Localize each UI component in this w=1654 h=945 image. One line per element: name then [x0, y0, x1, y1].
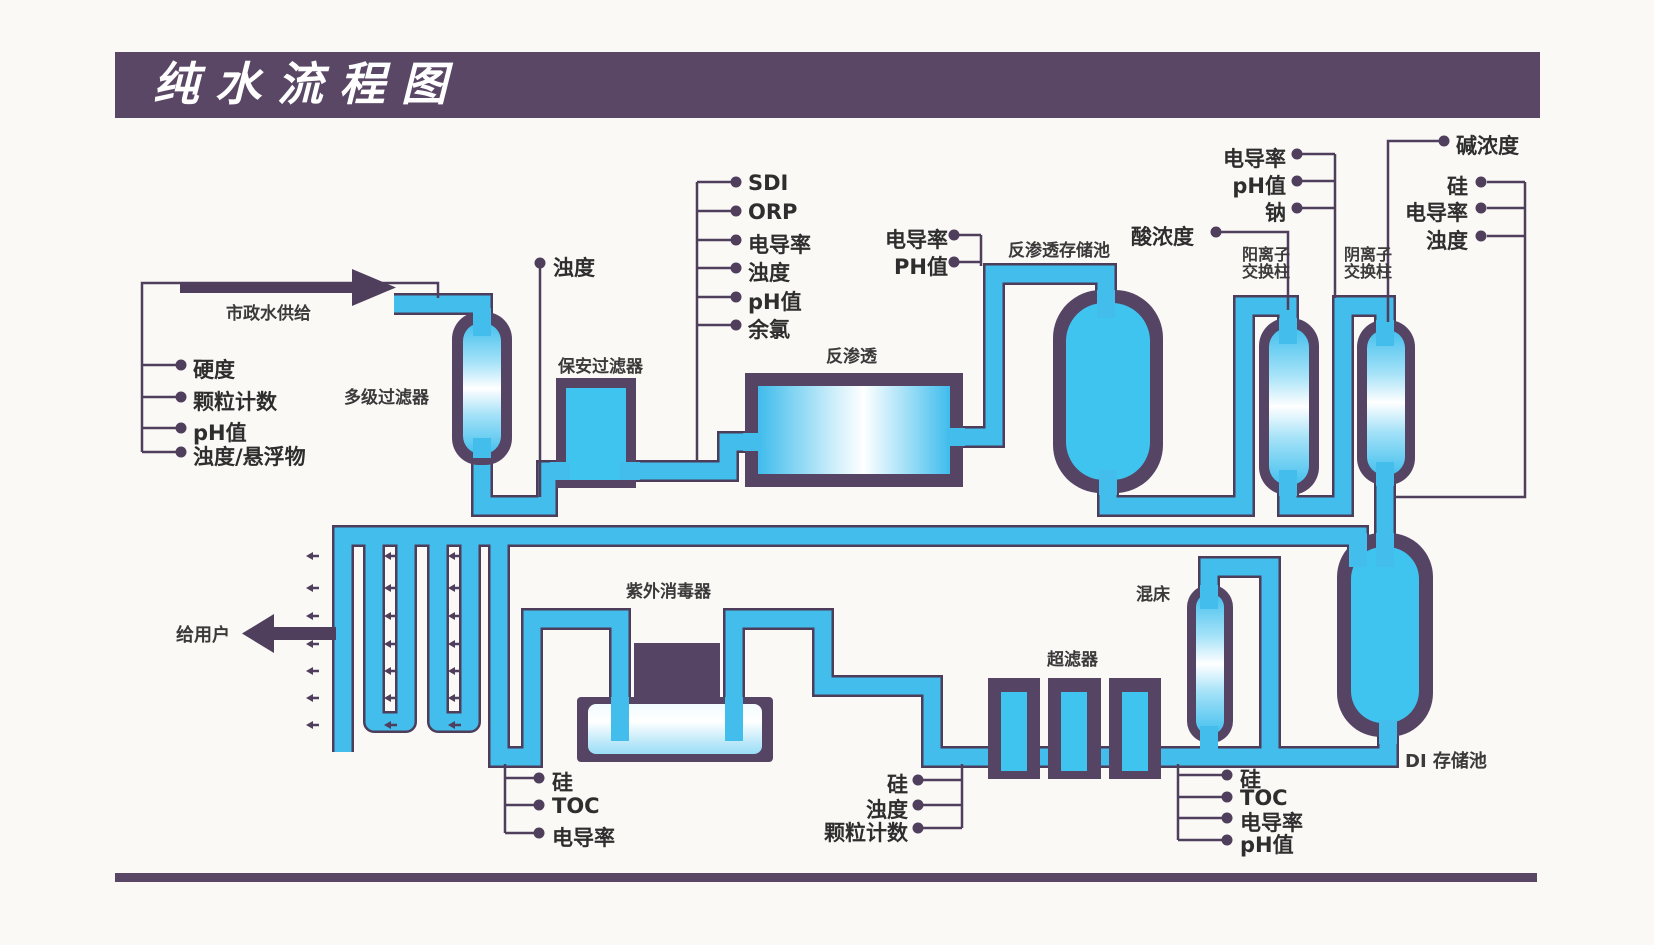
label-cartridge-filter: 保安过滤器: [558, 352, 643, 377]
monitor-conductivity-1: 电导率: [748, 229, 811, 259]
ultrafilter-modules: [988, 678, 1161, 779]
ro-storage-tank: [1053, 290, 1163, 495]
pure-water-flow-diagram: 纯水流程图 市政水供给 多级过滤器 保安过滤器 反渗透 反渗透存储池 阳离子 交…: [0, 0, 1654, 945]
label-ro-storage-tank: 反渗透存储池: [1008, 236, 1110, 261]
label-ultrafilter: 超滤器: [1047, 645, 1098, 670]
label-cation-line2: 交换柱: [1242, 262, 1290, 281]
label-multi-stage-filter: 多级过滤器: [344, 383, 429, 408]
monitor-orp: ORP: [748, 200, 797, 224]
monitor-turbidity-2: 浊度: [748, 257, 790, 287]
label-reverse-osmosis: 反渗透: [826, 342, 877, 367]
cartridge-filter-vessel: [550, 378, 640, 488]
monitor-turbidity-1: 浊度: [553, 252, 595, 282]
monitor-ph-5: pH值: [1240, 829, 1294, 859]
label-to-user: 给用户: [176, 621, 230, 647]
page-title: 纯水流程图: [115, 52, 1540, 118]
reverse-osmosis-unit: [743, 373, 965, 487]
monitor-sdi: SDI: [748, 171, 788, 195]
anion-exchange-column: [1357, 320, 1415, 486]
monitor-conductivity-3: 电导率: [1196, 143, 1286, 173]
monitor-ph-2: pH值: [748, 286, 802, 316]
monitor-sodium: 钠: [1196, 197, 1286, 227]
to-user-arrow: [242, 614, 336, 653]
monitor-hardness: 硬度: [193, 354, 235, 384]
monitor-toc-1: TOC: [552, 794, 600, 818]
di-storage-tank: [1337, 533, 1433, 744]
monitor-turbidity-suspended: 浊度/悬浮物: [193, 441, 306, 471]
label-anion-line2: 交换柱: [1344, 262, 1392, 281]
monitor-turbidity-3: 浊度: [1378, 225, 1468, 255]
cation-exchange-column: [1259, 318, 1319, 496]
multi-stage-filter-vessel: [452, 308, 512, 465]
label-uv-sterilizer: 紫外消毒器: [626, 577, 711, 602]
monitor-conductivity-4: 电导率: [1378, 197, 1468, 227]
monitor-particle-count: 颗粒计数: [193, 386, 277, 416]
mixed-bed-vessel: [1187, 585, 1233, 752]
bottom-border: [115, 873, 1537, 882]
monitor-silica-2: 硅: [552, 767, 573, 797]
monitor-particle-count-2: 颗粒计数: [798, 817, 908, 847]
monitor-ph-4: pH值: [1196, 170, 1286, 200]
monitor-conductivity-2: 电导率: [838, 224, 948, 254]
monitor-ph-3: PH值: [838, 251, 948, 281]
monitor-acid-concentration: 酸浓度: [1131, 221, 1194, 251]
label-mixed-bed: 混床: [1136, 580, 1170, 605]
label-cation-column: 阳离子 交换柱: [1238, 246, 1294, 280]
label-feed-water: 市政水供给: [226, 299, 311, 324]
label-di-storage-tank: DI 存储池: [1405, 747, 1487, 773]
monitor-alkali-concentration: 碱浓度: [1456, 130, 1519, 160]
monitor-conductivity-5: 电导率: [552, 822, 615, 852]
monitor-residual-chlorine: 余氯: [748, 314, 790, 344]
